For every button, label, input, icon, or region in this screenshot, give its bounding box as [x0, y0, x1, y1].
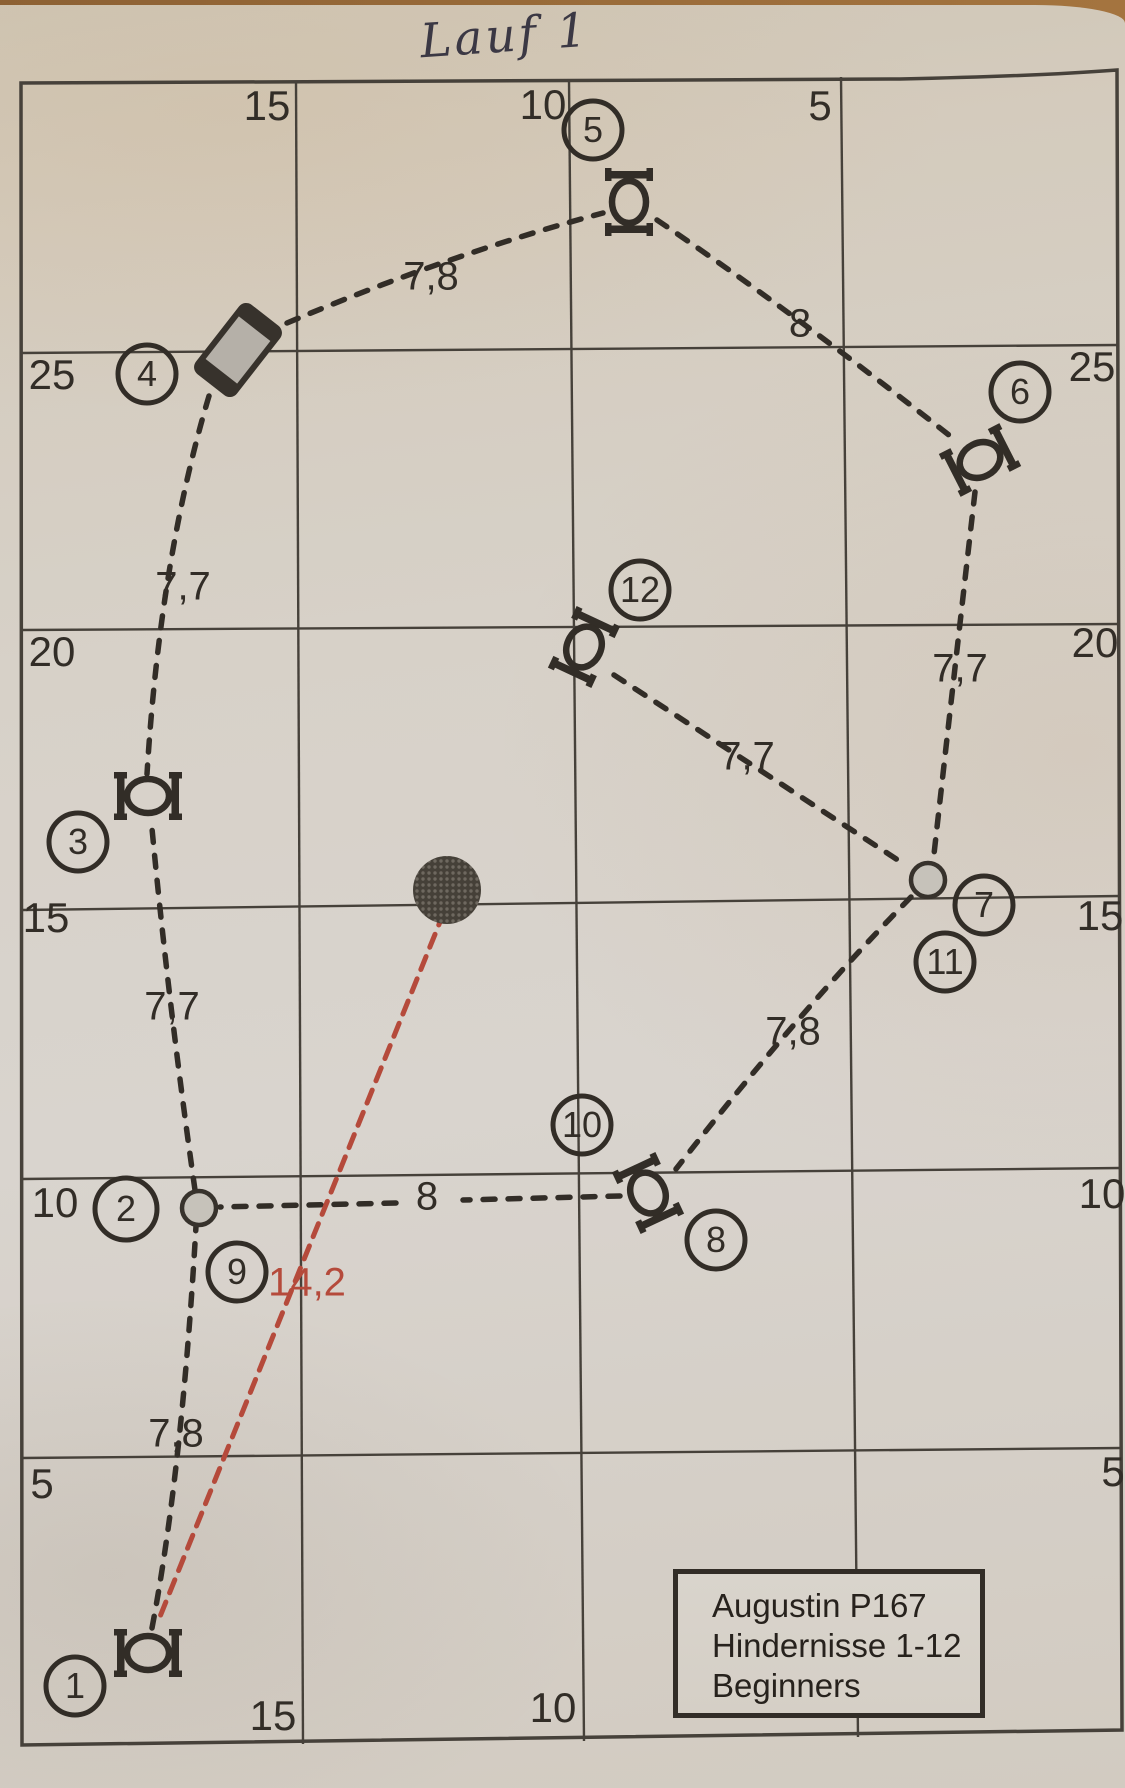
distance-label-leg-2-3: 7,7: [144, 985, 200, 1030]
gate-dot-7-11-icon: [911, 863, 945, 897]
info-obstacle-range: Hindernisse 1-12: [712, 1626, 980, 1666]
grid-label-bottom-10: 10: [530, 1684, 577, 1732]
grid-label-bottom-15: 15: [250, 1692, 297, 1740]
grid-label-left-25: 25: [29, 351, 76, 399]
obstacle-number-11: 11: [926, 941, 963, 983]
grid-label-right-25: 25: [1069, 343, 1116, 391]
hoop-1-icon: [114, 1629, 182, 1677]
obstacle-number-12: 12: [620, 569, 660, 611]
grid-label-top-5: 5: [808, 82, 831, 130]
hoop-5-icon: [605, 168, 653, 236]
grid-label-right-10: 10: [1079, 1170, 1125, 1218]
hoop-12-icon: [548, 606, 620, 688]
obstacle-number-2: 2: [116, 1188, 136, 1230]
grid-col-line: [841, 77, 858, 1737]
grid-row-line: [21, 624, 1119, 630]
distance-label-leg-6-7: 7,7: [932, 647, 988, 692]
obstacle-number-3: 3: [68, 821, 88, 863]
obstacle-number-8: 8: [706, 1219, 726, 1261]
grid-label-left-15: 15: [23, 894, 70, 942]
info-course-name: Augustin P167: [712, 1586, 980, 1626]
grid-row-line: [22, 1168, 1121, 1179]
grid-label-right-20: 20: [1072, 619, 1119, 667]
distance-label-leg-3-4: 7,7: [155, 565, 211, 610]
hoop-6-icon: [939, 423, 1021, 497]
grid-col-line: [569, 80, 584, 1741]
grid-row-line: [21, 345, 1118, 353]
obstacle-number-9: 9: [227, 1251, 247, 1293]
grid-label-top-15: 15: [244, 82, 291, 130]
obstacle-number-10: 10: [562, 1104, 602, 1146]
obstacle-number-7: 7: [974, 884, 994, 926]
obstacle-number-1: 1: [65, 1665, 85, 1707]
leg-8-9-right: [463, 1196, 620, 1200]
distance-label-leg-8-9: 8: [416, 1175, 438, 1220]
distance-label-leg-11-12: 7,7: [719, 735, 775, 780]
gate-dot-2-9-icon: [182, 1191, 216, 1225]
grid-label-left-10: 10: [32, 1179, 79, 1227]
distance-label-leg-4-5: 7,8: [403, 255, 459, 300]
grid-col-line: [296, 81, 303, 1744]
course-info-box: Augustin P167 Hindernisse 1-12 Beginners: [673, 1569, 985, 1718]
obstacle-number-4: 4: [137, 353, 157, 395]
course-diagram: [0, 0, 1125, 1788]
distance-label-leg-7-8: 7,8: [765, 1010, 821, 1055]
grid-label-left-20: 20: [29, 628, 76, 676]
center-marker-dot: [413, 856, 481, 924]
info-class-level: Beginners: [712, 1666, 980, 1706]
obstacle-number-6: 6: [1010, 371, 1030, 413]
hoop-8-10-icon: [612, 1152, 684, 1234]
distance-label-leg-1-2: 7,8: [148, 1412, 204, 1457]
grid-label-left-5: 5: [30, 1460, 53, 1508]
leg-8-9-left: [220, 1203, 396, 1207]
grid-label-right-15: 15: [1077, 892, 1124, 940]
distance-label-leg-5-6: 8: [789, 302, 811, 347]
measure-distance-label: 14,2: [268, 1261, 346, 1306]
obstacle-number-5: 5: [583, 109, 603, 151]
grid-label-right-5: 5: [1101, 1448, 1124, 1496]
hoop-3-icon: [114, 772, 182, 820]
course-map-photo: Lauf 1 15 10 5 15 10 25 20 15 10 5 25 20…: [0, 0, 1125, 1788]
grid-label-top-10: 10: [520, 81, 567, 129]
